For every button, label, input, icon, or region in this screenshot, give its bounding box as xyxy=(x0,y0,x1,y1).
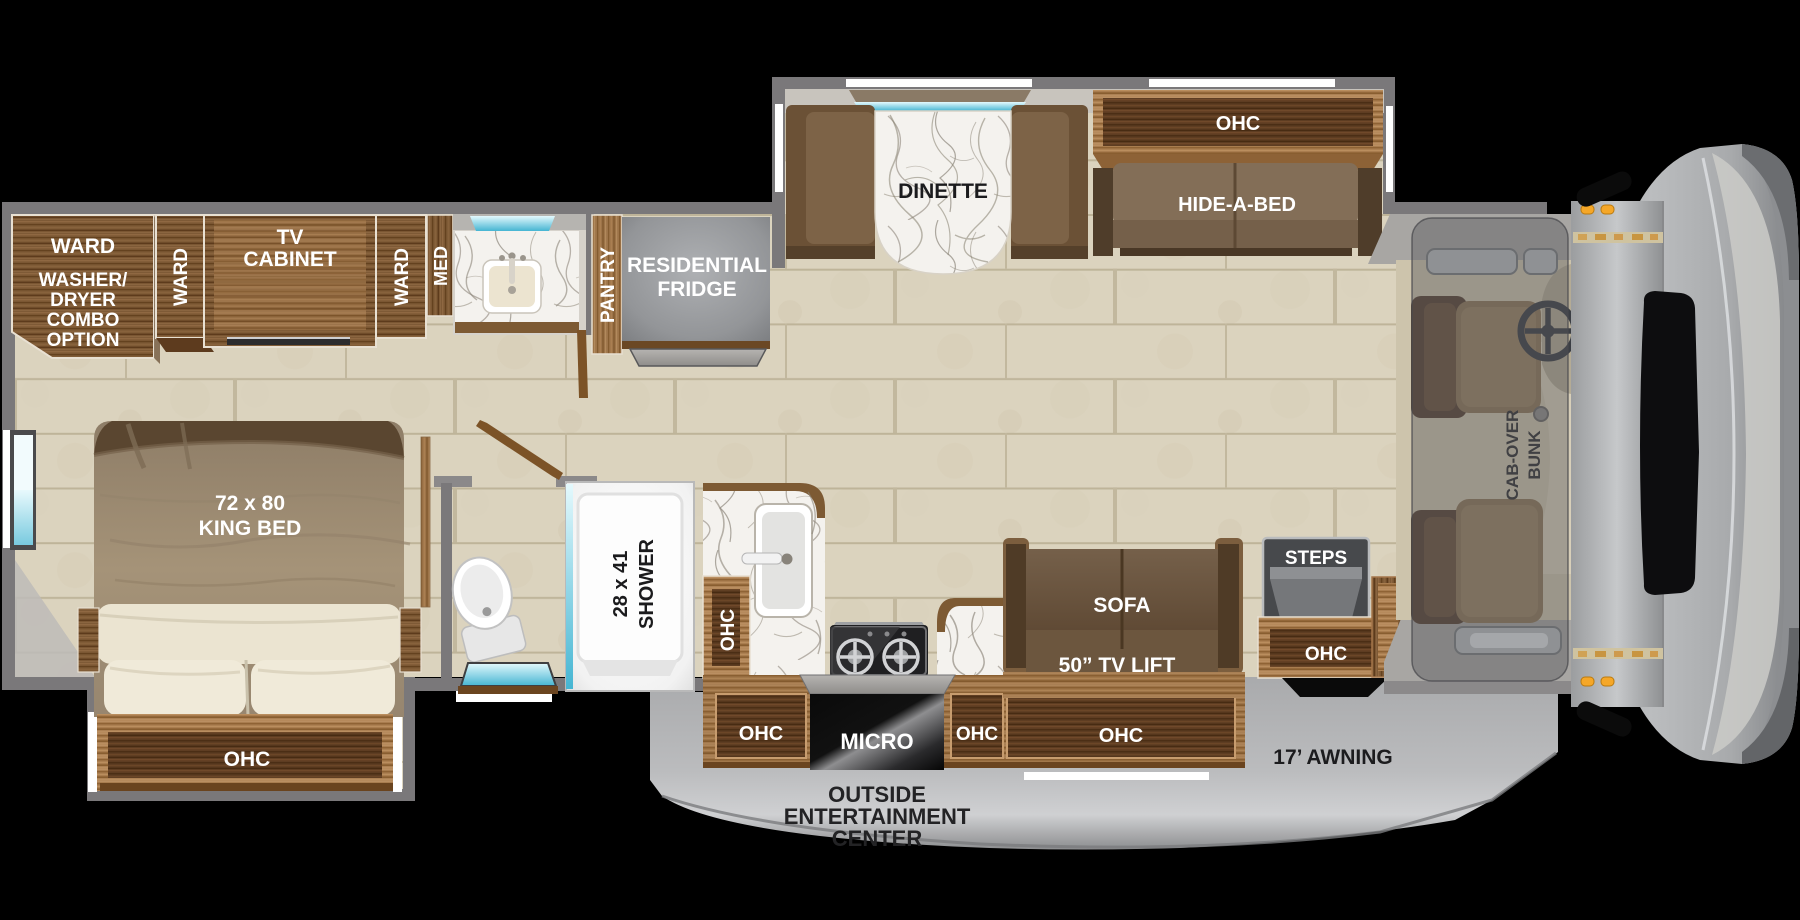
svg-text:MED: MED xyxy=(431,246,451,286)
svg-text:DINETTE: DINETTE xyxy=(898,180,988,203)
svg-text:72 x 80: 72 x 80 xyxy=(215,492,285,515)
svg-text:17’ AWNING: 17’ AWNING xyxy=(1273,746,1392,769)
svg-text:CAB-OVER: CAB-OVER xyxy=(1503,410,1522,501)
svg-text:OHC: OHC xyxy=(739,723,783,745)
svg-text:CABINET: CABINET xyxy=(243,248,337,271)
svg-text:OHC: OHC xyxy=(1305,644,1348,665)
svg-text:WARD: WARD xyxy=(51,235,115,258)
svg-text:28 x 41: 28 x 41 xyxy=(610,551,632,618)
svg-text:MICRO: MICRO xyxy=(840,729,913,754)
svg-text:DRYER: DRYER xyxy=(50,290,116,311)
svg-text:PANTRY: PANTRY xyxy=(598,247,619,323)
svg-text:OHC: OHC xyxy=(1216,113,1260,135)
svg-text:STEPS: STEPS xyxy=(1285,548,1347,569)
svg-text:OPTION: OPTION xyxy=(47,330,120,351)
svg-text:WARD: WARD xyxy=(392,248,413,306)
svg-text:BUNK: BUNK xyxy=(1525,430,1544,480)
svg-text:CENTER: CENTER xyxy=(832,826,923,851)
svg-text:OHC: OHC xyxy=(224,748,271,771)
svg-text:COMBO: COMBO xyxy=(47,310,120,331)
svg-text:OHC: OHC xyxy=(718,609,739,652)
svg-text:KING BED: KING BED xyxy=(199,517,302,540)
svg-text:SHOWER: SHOWER xyxy=(636,538,658,629)
svg-text:WARD: WARD xyxy=(171,248,192,306)
svg-text:OHC: OHC xyxy=(956,724,999,745)
svg-text:SOFA: SOFA xyxy=(1093,594,1150,617)
svg-text:TV: TV xyxy=(277,226,304,249)
svg-text:OHC: OHC xyxy=(1099,725,1143,747)
svg-text:50” TV LIFT: 50” TV LIFT xyxy=(1059,654,1176,677)
svg-text:HIDE-A-BED: HIDE-A-BED xyxy=(1178,194,1296,216)
svg-text:RESIDENTIAL: RESIDENTIAL xyxy=(627,254,767,277)
svg-text:WASHER/: WASHER/ xyxy=(39,270,128,291)
svg-text:FRIDGE: FRIDGE xyxy=(657,278,736,301)
